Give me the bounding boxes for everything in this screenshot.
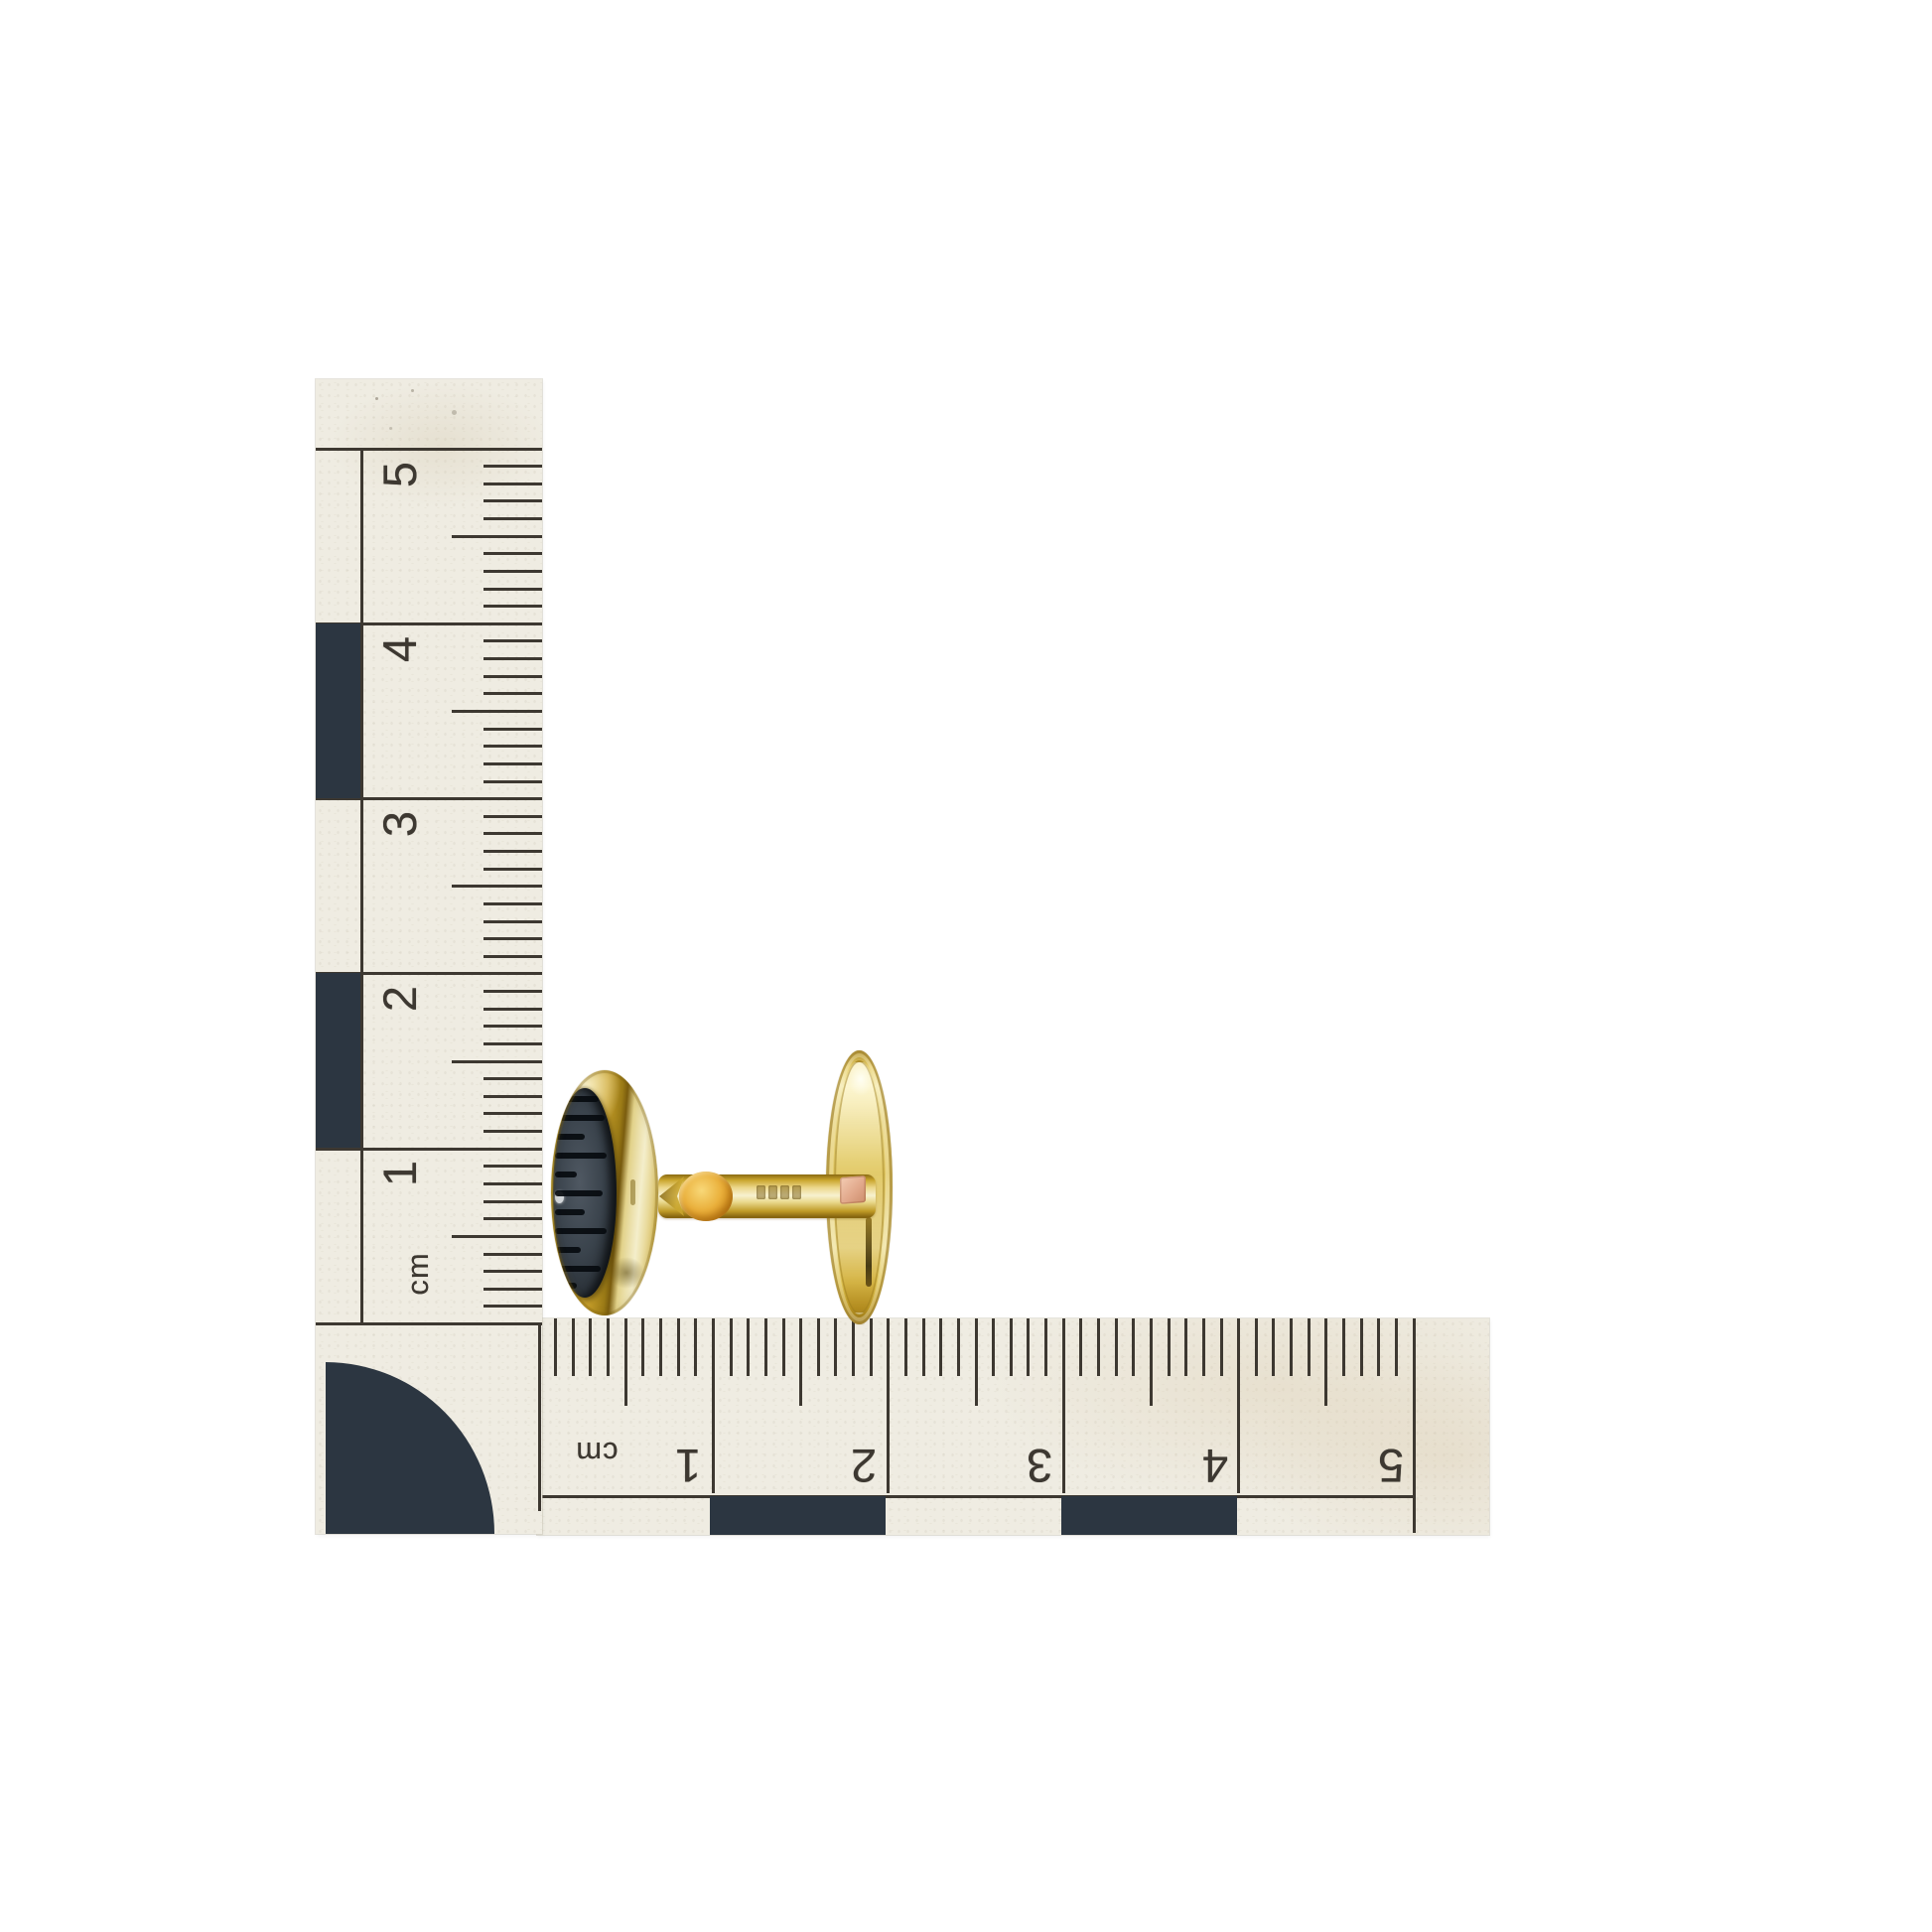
mm-tick — [483, 868, 542, 871]
half-cm-tick — [452, 1235, 542, 1238]
mm-tick — [483, 937, 542, 940]
mm-tick — [1079, 1318, 1082, 1376]
mm-tick — [1290, 1318, 1293, 1376]
cufflink-toggle-back — [826, 1050, 893, 1324]
stone-engraved-line — [555, 1228, 607, 1234]
stone-engraved-line — [555, 1209, 585, 1215]
mm-tick — [904, 1318, 907, 1376]
mm-tick — [483, 1288, 542, 1291]
vertical-ruler: cm 5 4 3 2 1 — [316, 379, 542, 1534]
mm-tick — [483, 1112, 542, 1115]
stone-engraved-line — [561, 1096, 599, 1102]
checker-band — [316, 623, 360, 798]
mm-tick — [782, 1318, 785, 1376]
mm-tick — [641, 1318, 644, 1376]
mm-tick — [834, 1318, 837, 1376]
half-cm-tick — [624, 1318, 627, 1406]
mm-tick — [730, 1318, 733, 1376]
mm-tick — [483, 1042, 542, 1045]
mm-tick — [589, 1318, 592, 1376]
mm-tick — [1027, 1318, 1030, 1376]
cm-line — [316, 1322, 542, 1325]
mm-tick — [1308, 1318, 1311, 1376]
mm-tick — [747, 1318, 750, 1376]
mm-tick — [483, 850, 542, 853]
mm-tick — [483, 1200, 542, 1203]
half-cm-tick — [1324, 1318, 1327, 1406]
mm-tick — [483, 745, 542, 748]
half-cm-tick — [452, 535, 542, 538]
mm-tick — [677, 1318, 680, 1376]
stem-joint — [679, 1172, 733, 1221]
mm-tick — [483, 465, 542, 468]
mm-tick — [483, 1182, 542, 1185]
mm-tick — [939, 1318, 942, 1376]
mm-tick — [483, 1095, 542, 1098]
horizontal-ruler-baseline — [537, 1495, 1416, 1498]
mm-tick — [1272, 1318, 1275, 1376]
mm-tick — [483, 1130, 542, 1133]
mm-tick — [554, 1318, 557, 1376]
mm-tick — [1044, 1318, 1047, 1376]
paper-specks — [375, 397, 378, 400]
mm-tick — [1202, 1318, 1205, 1376]
vertical-ruler-edge-line — [360, 449, 363, 1324]
checker-band — [710, 1496, 886, 1535]
cufflink-toggle-inner — [834, 1060, 885, 1314]
mm-tick — [764, 1318, 767, 1376]
mm-tick — [1184, 1318, 1187, 1376]
toggle-reflection-slit — [866, 1217, 872, 1287]
mm-tick — [483, 1253, 542, 1256]
vertical-ruler-number-3: 3 — [378, 800, 422, 848]
mm-tick — [483, 552, 542, 555]
mm-tick — [483, 762, 542, 765]
mm-tick — [483, 588, 542, 591]
stone-engraved-line — [555, 1190, 603, 1196]
hallmark-stamps — [757, 1185, 808, 1201]
horizontal-ruler: cm 1 2 3 4 5 — [537, 1318, 1489, 1535]
mm-tick — [1132, 1318, 1135, 1376]
mm-tick — [483, 692, 542, 695]
cm-line — [316, 448, 542, 451]
corner-quarter-disc — [326, 1362, 494, 1534]
stone-inlay — [553, 1088, 617, 1298]
mm-tick — [659, 1318, 662, 1376]
mm-tick — [1360, 1318, 1363, 1376]
mm-tick — [483, 990, 542, 993]
scale-end-line — [1413, 1318, 1416, 1533]
mm-tick — [483, 1305, 542, 1308]
half-cm-tick — [975, 1318, 978, 1406]
vertical-ruler-number-4: 4 — [378, 625, 422, 673]
mm-tick — [483, 605, 542, 608]
mm-tick — [483, 955, 542, 958]
horizontal-ruler-number-4: 4 — [1191, 1444, 1239, 1487]
mm-tick — [483, 657, 542, 660]
horizontal-ruler-number-2: 2 — [840, 1444, 888, 1487]
horizontal-ruler-number-1: 1 — [664, 1444, 712, 1487]
stone-engraved-line — [555, 1115, 605, 1121]
mm-tick — [694, 1318, 697, 1376]
vertical-ruler-unit-label: cm — [388, 1244, 448, 1304]
cm-line — [712, 1318, 715, 1493]
checker-band — [316, 973, 360, 1148]
vertical-ruler-number-5: 5 — [378, 451, 422, 498]
mm-tick — [922, 1318, 925, 1376]
mm-tick — [852, 1318, 855, 1376]
half-cm-tick — [452, 885, 542, 888]
mm-tick — [1220, 1318, 1223, 1376]
mm-tick — [483, 1217, 542, 1220]
vertical-ruler-number-1: 1 — [378, 1150, 422, 1197]
stem-facet — [659, 1176, 684, 1216]
mm-tick — [483, 832, 542, 835]
stone-engraved-line — [555, 1153, 607, 1159]
mm-tick — [483, 920, 542, 923]
mm-tick — [1377, 1318, 1380, 1376]
mm-tick — [572, 1318, 575, 1376]
mm-tick — [817, 1318, 820, 1376]
mm-tick — [483, 728, 542, 731]
toggle-highlight — [848, 1062, 874, 1096]
mm-tick — [483, 815, 542, 818]
mm-tick — [607, 1318, 610, 1376]
stone-engraved-line — [559, 1283, 577, 1289]
mm-tick — [483, 499, 542, 502]
stone-engraved-line — [555, 1172, 577, 1177]
stone-engraved-line — [555, 1134, 585, 1140]
stone-engraved-line — [557, 1266, 601, 1272]
stone-highlight-dot — [555, 1191, 564, 1203]
mm-tick — [483, 902, 542, 905]
mm-tick — [1342, 1318, 1345, 1376]
half-cm-tick — [799, 1318, 802, 1406]
cufflink-stem — [658, 1174, 876, 1218]
mm-tick — [1010, 1318, 1013, 1376]
mm-tick — [992, 1318, 995, 1376]
mm-tick — [483, 675, 542, 678]
checker-band — [1061, 1496, 1237, 1535]
horizontal-ruler-unit-label: cm — [562, 1433, 631, 1472]
vertical-ruler-number-2: 2 — [378, 975, 422, 1023]
mm-tick — [1395, 1318, 1398, 1376]
mm-tick — [483, 517, 542, 520]
paper-stain — [316, 379, 542, 598]
mm-tick — [483, 639, 542, 642]
mm-tick — [483, 1008, 542, 1011]
bezel-shadow-patch — [609, 1257, 644, 1289]
photo-stage: cm 1 2 3 4 5 cm 5 4 3 2 1 — [0, 0, 1932, 1932]
mm-tick — [483, 483, 542, 485]
mm-tick — [483, 780, 542, 783]
mm-tick — [870, 1318, 873, 1376]
stem-pink-reflection — [840, 1175, 866, 1204]
cm-line — [316, 1148, 542, 1151]
cufflink — [0, 0, 1932, 1932]
mm-tick — [483, 1270, 542, 1273]
cufflink-face — [551, 1070, 658, 1315]
corner-edge-line — [538, 1322, 541, 1511]
mm-tick — [483, 1025, 542, 1028]
mm-tick — [1255, 1318, 1258, 1376]
mm-tick — [1115, 1318, 1118, 1376]
mm-tick — [1097, 1318, 1100, 1376]
mm-tick — [483, 1077, 542, 1080]
half-cm-tick — [452, 1060, 542, 1063]
horizontal-ruler-number-5: 5 — [1367, 1444, 1415, 1487]
half-cm-tick — [1150, 1318, 1153, 1406]
mm-tick — [483, 1165, 542, 1168]
half-cm-tick — [452, 710, 542, 713]
bezel-reflection-dash — [630, 1179, 635, 1205]
mm-tick — [483, 570, 542, 573]
mm-tick — [1168, 1318, 1171, 1376]
mm-tick — [957, 1318, 960, 1376]
stone-engraved-line — [555, 1247, 581, 1253]
horizontal-ruler-number-3: 3 — [1016, 1444, 1063, 1487]
